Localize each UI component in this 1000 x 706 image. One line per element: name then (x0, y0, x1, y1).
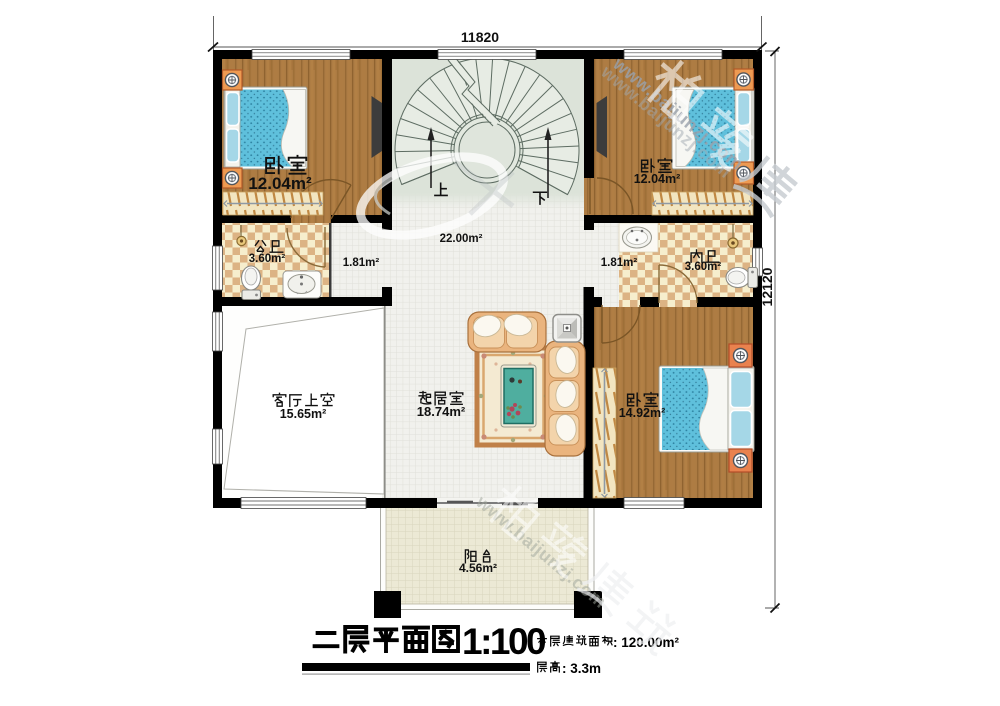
svg-text:3.60m²: 3.60m² (249, 253, 286, 265)
svg-text:: 3.3m: : 3.3m (562, 661, 601, 676)
svg-text:1.81m²: 1.81m² (343, 257, 380, 269)
svg-text:14.92m²: 14.92m² (619, 406, 666, 420)
svg-text:1.81m²: 1.81m² (601, 257, 638, 269)
svg-text:22.00m²: 22.00m² (440, 233, 483, 245)
svg-text:15.65m²: 15.65m² (280, 407, 327, 421)
svg-text:12.04m²: 12.04m² (634, 172, 681, 186)
svg-text:4.56m²: 4.56m² (459, 561, 497, 575)
svg-text:11820: 11820 (461, 29, 499, 45)
svg-text:3.60m²: 3.60m² (685, 261, 722, 273)
svg-text:1:100: 1:100 (462, 621, 546, 662)
svg-text:18.74m²: 18.74m² (417, 404, 466, 419)
svg-text:12120: 12120 (759, 267, 775, 306)
svg-text:12.04m²: 12.04m² (248, 174, 312, 193)
